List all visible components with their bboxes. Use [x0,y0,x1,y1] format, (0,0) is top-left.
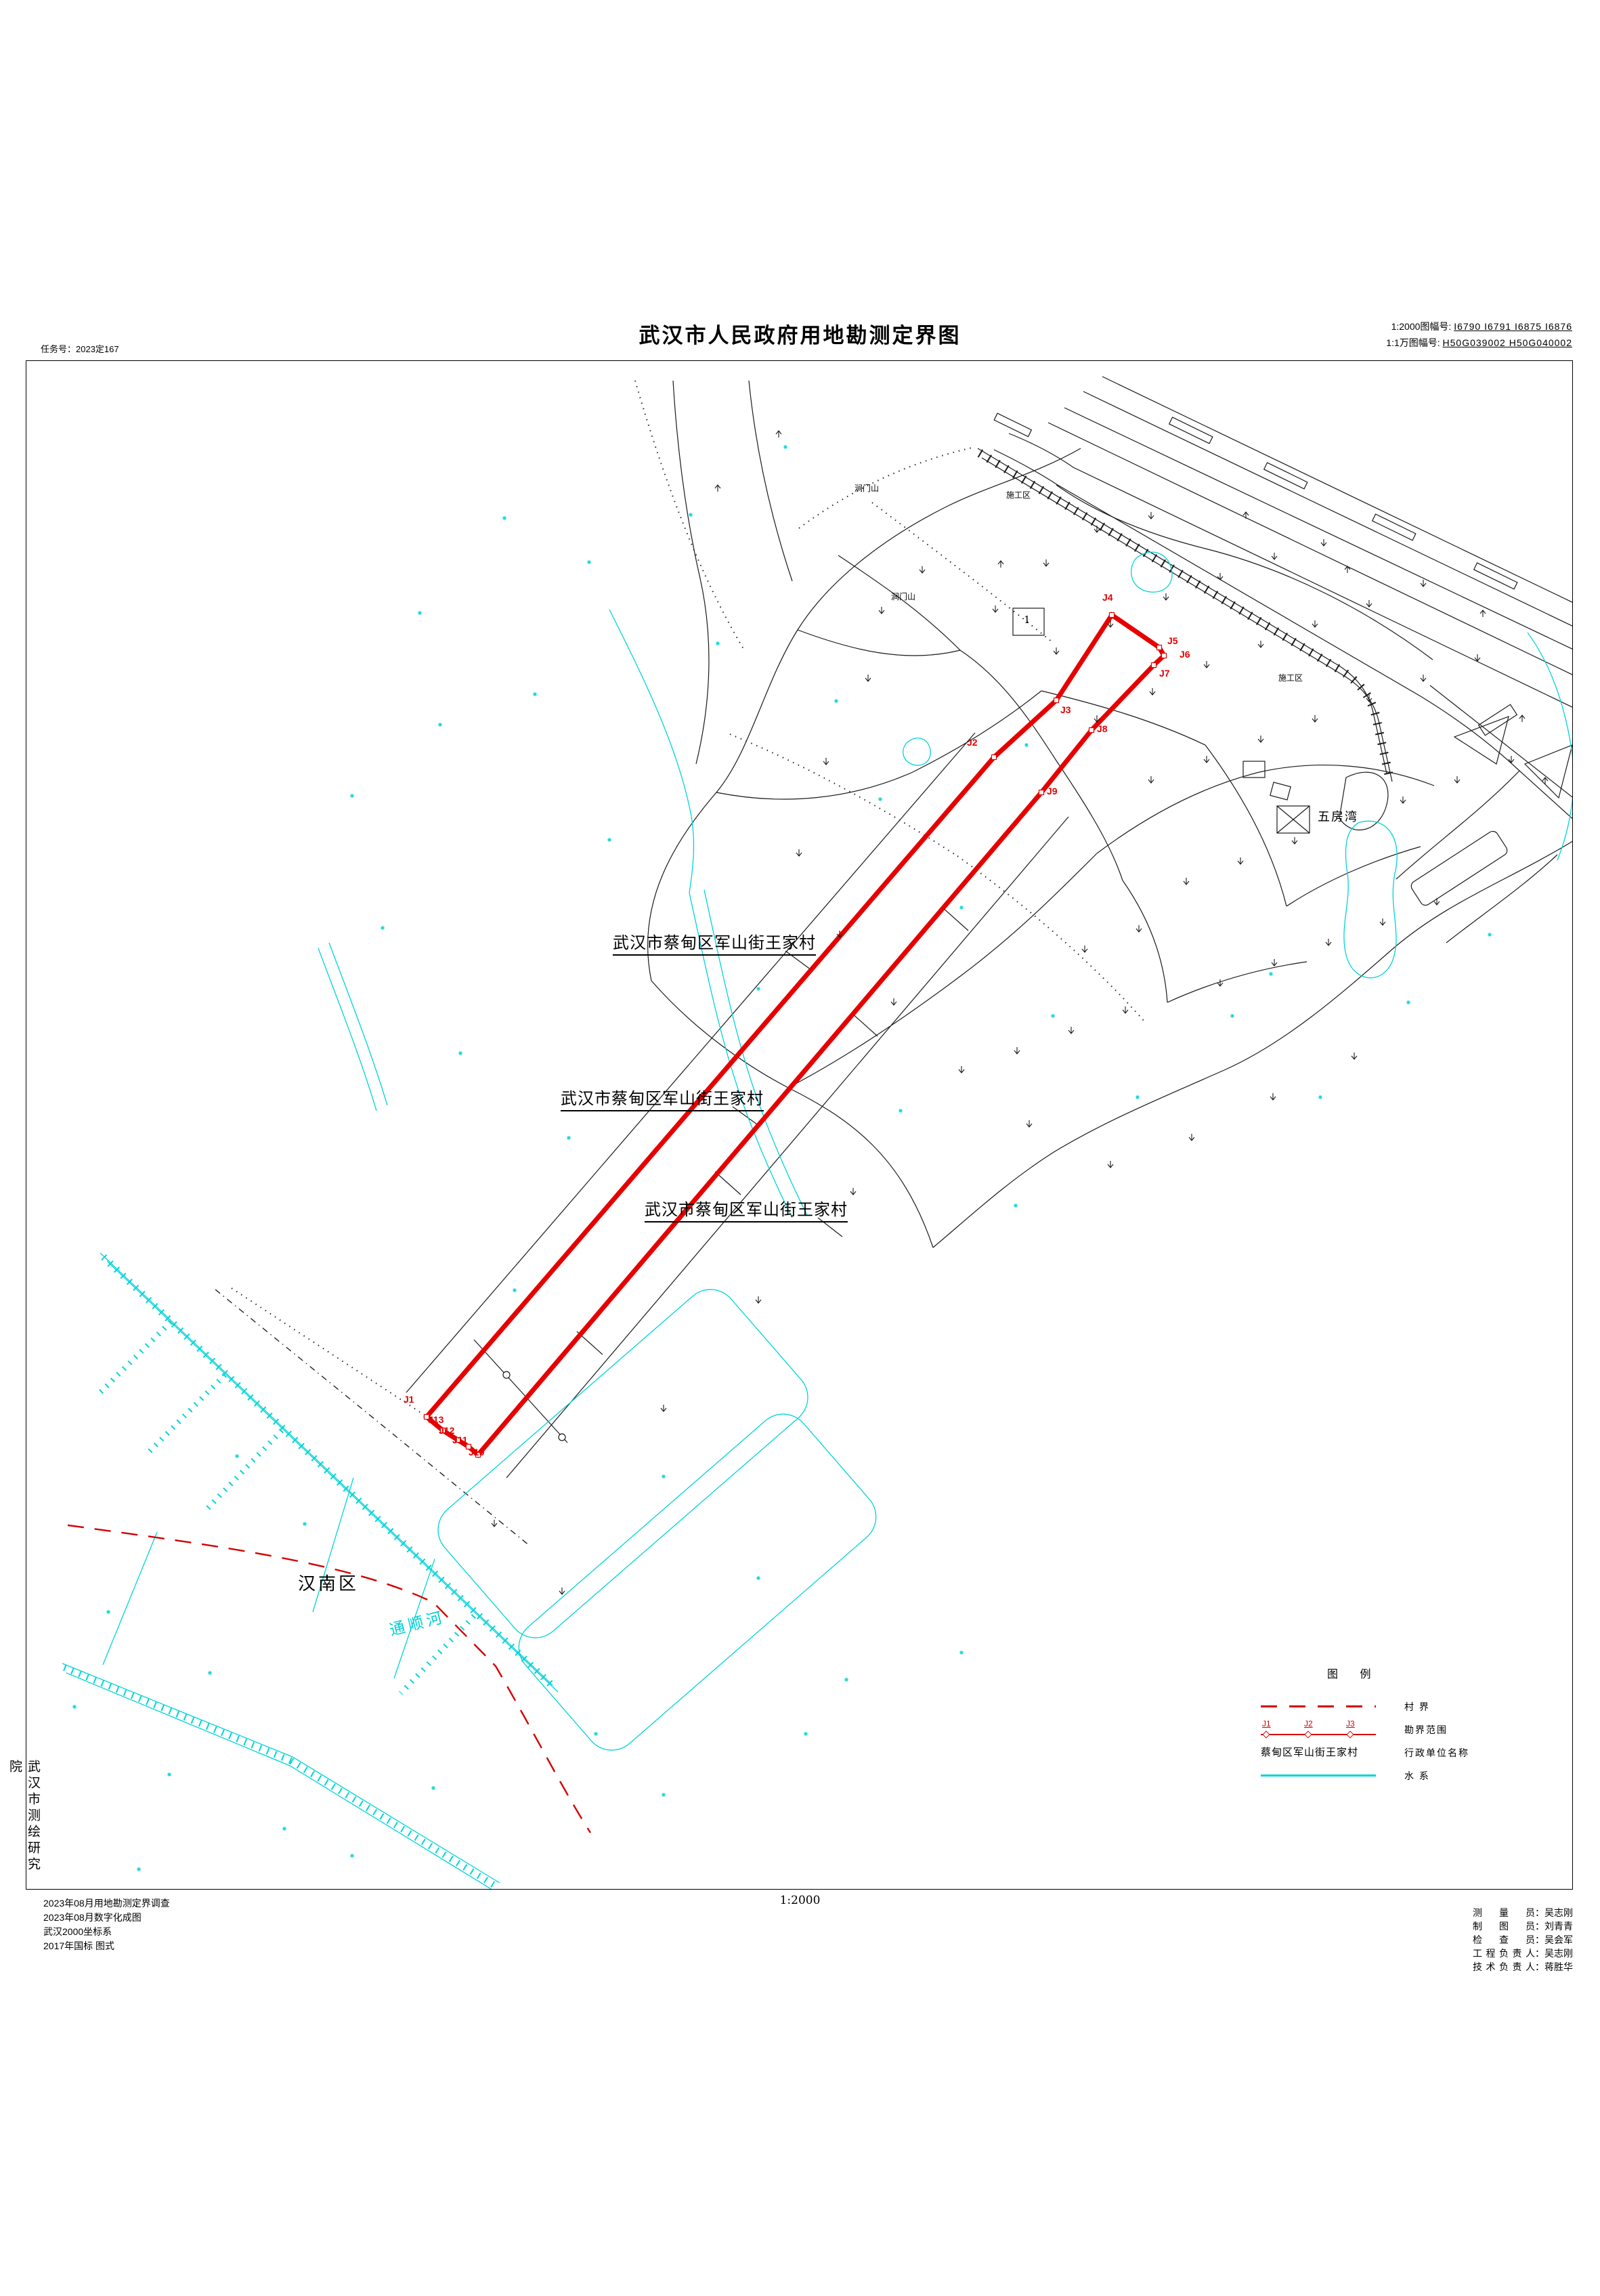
legend-row-water: 水 系 [1261,1765,1484,1788]
page-title: 武汉市人民政府用地勘测定界图 [0,318,1600,349]
sheet-2000-value: I6790 I6791 I6875 I6876 [1454,321,1572,332]
legend-row-survey-extent: J1 J2 J3 勘界范围 [1261,1719,1484,1742]
staff-block: 测 量 员：吴志刚 制 图 员：刘青青 检 查 员：吴会军 工程负责人：吴志刚 … [1473,1906,1573,1974]
legend-title: 图 例 [1327,1665,1484,1681]
legend: 图 例 村 界 J1 J2 J3 勘界范围 蔡甸区军山街王家村 行政单位名称 水… [1261,1665,1484,1788]
legend-j2: J2 [1304,1719,1313,1728]
legend-label: 勘界范围 [1404,1723,1448,1737]
legend-label: 行政单位名称 [1404,1746,1469,1760]
sheet-numbers: 1:2000图幅号: I6790 I6791 I6875 I6876 1:1万图… [1386,318,1572,351]
survey-extent-sample: J1 J2 J3 [1261,1719,1377,1742]
legend-label: 村 界 [1404,1700,1430,1714]
sheet-number-10000: 1:1万图幅号: H50G039002 H50G040002 [1386,335,1572,351]
staff-row: 检 查 员：吴会军 [1473,1933,1573,1947]
village-boundary-sample [1261,1696,1377,1719]
legend-j1: J1 [1262,1719,1271,1728]
legend-label: 水 系 [1404,1769,1430,1783]
survey-map-sheet: { "header": { "task_no": "任务号：2023定167",… [0,0,1600,2296]
institute-name: 武汉市测绘研究院 [5,1760,42,1888]
map-scale: 1:2000 [0,1894,1600,1907]
note-line: 2017年国标 图式 [43,1939,170,1953]
note-line: 2023年08月数字化成图 [43,1911,170,1925]
staff-row: 测 量 员：吴志刚 [1473,1906,1573,1919]
staff-row: 工程负责人：吴志刚 [1473,1947,1573,1960]
admin-name-sample-text: 蔡甸区军山街王家村 [1261,1745,1358,1759]
sheet-10000-value: H50G039002 H50G040002 [1443,337,1572,348]
note-line: 武汉2000坐标系 [43,1925,170,1939]
water-sample [1261,1765,1377,1788]
staff-row: 技术负责人：蒋胜华 [1473,1960,1573,1974]
admin-name-sample: 蔡甸区军山街王家村 [1261,1742,1377,1765]
staff-row: 制 图 员：刘青青 [1473,1919,1573,1933]
legend-j3: J3 [1346,1719,1355,1728]
sheet-number-2000: 1:2000图幅号: I6790 I6791 I6875 I6876 [1386,318,1572,335]
legend-row-village-boundary: 村 界 [1261,1696,1484,1719]
sheet-10000-label: 1:1万图幅号: [1386,337,1440,348]
sheet-2000-label: 1:2000图幅号: [1391,321,1452,332]
map-frame [26,360,1573,1890]
legend-row-admin-name: 蔡甸区军山街王家村 行政单位名称 [1261,1742,1484,1765]
